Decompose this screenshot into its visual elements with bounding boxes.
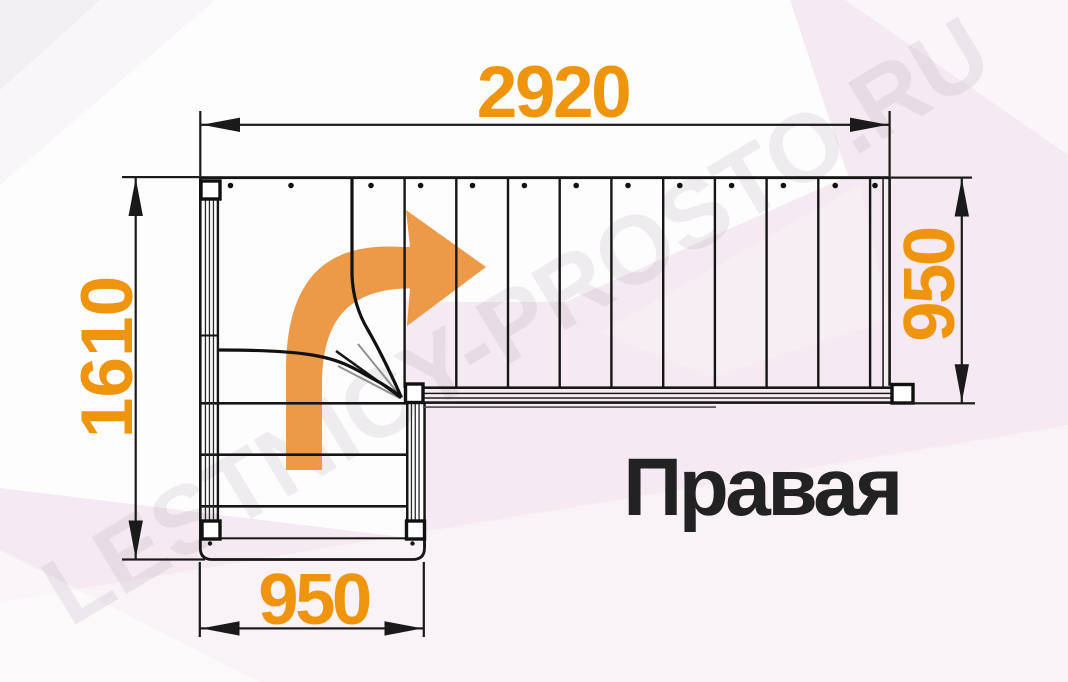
svg-text:950: 950 bbox=[889, 228, 970, 342]
svg-text:1610: 1610 bbox=[67, 276, 148, 438]
svg-text:Правая: Правая bbox=[623, 442, 899, 533]
svg-text:950: 950 bbox=[258, 559, 370, 640]
svg-text:2920: 2920 bbox=[477, 52, 629, 133]
